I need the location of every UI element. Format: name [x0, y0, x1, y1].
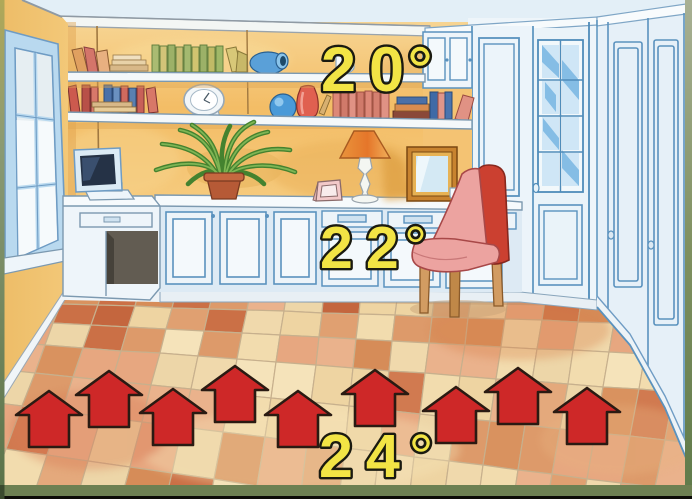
- svg-text:20: 20: [321, 35, 417, 105]
- svg-text:24: 24: [319, 422, 413, 490]
- svg-text:22: 22: [320, 215, 412, 281]
